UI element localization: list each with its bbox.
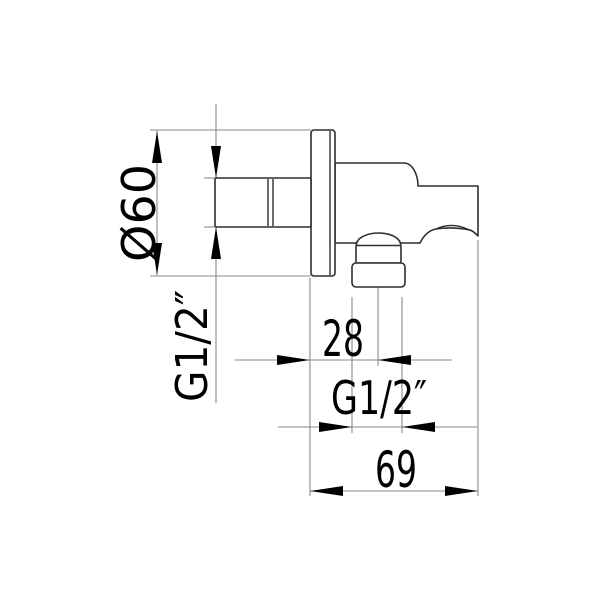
dim-label-inlet-thread: G1/2″ [167, 290, 218, 402]
arrow-depth-right [445, 486, 478, 496]
inlet-thread-stub [215, 178, 311, 227]
dim-label-overall-depth: 69 [375, 441, 417, 499]
outlet-ring-nut [352, 263, 405, 287]
arrow-inlet-top [211, 146, 221, 178]
arrow-inlet-bottom [211, 227, 221, 259]
wall-flange [311, 130, 335, 276]
technical-drawing: Ø60 G1/2″ 28 G1/2″ 69 [0, 0, 600, 600]
arrow-flange-top [152, 131, 162, 163]
arrow-offset-left [277, 355, 310, 365]
arrow-offset-right [378, 355, 411, 365]
dim-label-outlet-offset: 28 [322, 310, 364, 368]
dim-label-outlet-thread: G1/2″ [331, 371, 427, 425]
holder-bracket [335, 163, 478, 243]
fixture-outline [215, 130, 478, 287]
dim-label-flange-diameter: Ø60 [112, 164, 166, 262]
arrow-depth-left [310, 486, 343, 496]
outlet-cap-dome [356, 233, 401, 263]
